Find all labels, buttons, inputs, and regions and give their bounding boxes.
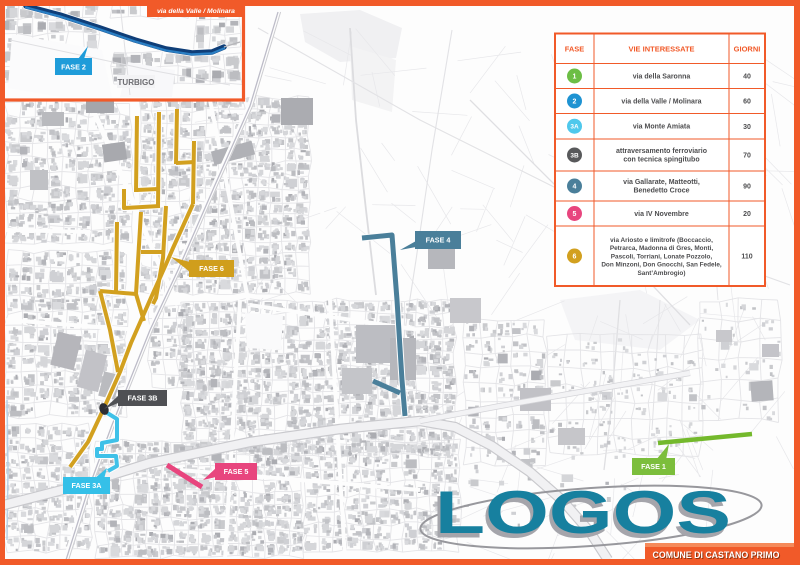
svg-text:via Gallarate, Matteotti,: via Gallarate, Matteotti,: [623, 179, 700, 186]
svg-text:90: 90: [743, 184, 751, 191]
svg-text:FASE: FASE: [565, 45, 585, 54]
svg-text:via Ariosto e limitrofe (Bocca: via Ariosto e limitrofe (Boccaccio,: [610, 237, 713, 244]
svg-text:1: 1: [573, 74, 577, 81]
svg-text:FASE 2: FASE 2: [61, 63, 86, 72]
svg-text:via IV Novembre: via IV Novembre: [634, 211, 689, 218]
svg-text:2: 2: [573, 99, 577, 106]
svg-text:FASE 3B: FASE 3B: [128, 394, 158, 403]
svg-text:60: 60: [743, 99, 751, 106]
svg-text:FASE 4: FASE 4: [426, 236, 451, 245]
svg-text:5: 5: [573, 211, 577, 218]
svg-text:110: 110: [741, 254, 752, 261]
svg-text:FASE 6: FASE 6: [199, 264, 224, 273]
svg-text:via della Valle / Molinara: via della Valle / Molinara: [621, 98, 701, 105]
svg-text:via della Valle / Molinara: via della Valle / Molinara: [157, 8, 235, 15]
svg-text:4: 4: [573, 184, 577, 191]
svg-text:via Monte Amiata: via Monte Amiata: [633, 124, 690, 131]
svg-text:LOGOS: LOGOS: [435, 479, 731, 546]
svg-text:30: 30: [743, 124, 751, 131]
svg-text:TURBIGO: TURBIGO: [118, 78, 155, 87]
svg-text:3B: 3B: [570, 152, 579, 159]
svg-text:40: 40: [743, 74, 751, 81]
svg-text:VIE INTERESSATE: VIE INTERESSATE: [628, 45, 694, 54]
svg-text:FASE 5: FASE 5: [224, 467, 249, 476]
svg-text:70: 70: [743, 153, 751, 160]
svg-text:via della Saronna: via della Saronna: [633, 73, 691, 80]
svg-text:COMUNE DI CASTANO PRIMO: COMUNE DI CASTANO PRIMO: [653, 550, 780, 560]
svg-text:3A: 3A: [570, 124, 579, 131]
svg-text:attraversamento ferroviario: attraversamento ferroviario: [616, 148, 707, 155]
svg-text:Petrarca, Madonna di Gres, Mon: Petrarca, Madonna di Gres, Monti,: [610, 245, 714, 252]
svg-text:FASE 3A: FASE 3A: [72, 481, 102, 490]
svg-text:6: 6: [573, 254, 577, 261]
svg-text:Sant’Ambrogio): Sant’Ambrogio): [638, 270, 686, 277]
svg-text:Benedetto Croce: Benedetto Croce: [633, 188, 689, 195]
svg-text:GIORNI: GIORNI: [734, 45, 761, 54]
svg-text:con tecnica spingitubo: con tecnica spingitubo: [623, 157, 699, 164]
svg-text:Pascoli, Torriani, Lonate Pozz: Pascoli, Torriani, Lonate Pozzolo,: [611, 253, 713, 260]
svg-text:Don Minzoni, Don Gnocchi, San: Don Minzoni, Don Gnocchi, San Fedele,: [601, 262, 722, 269]
svg-text:20: 20: [743, 211, 751, 218]
svg-text:FASE 1: FASE 1: [641, 462, 666, 471]
